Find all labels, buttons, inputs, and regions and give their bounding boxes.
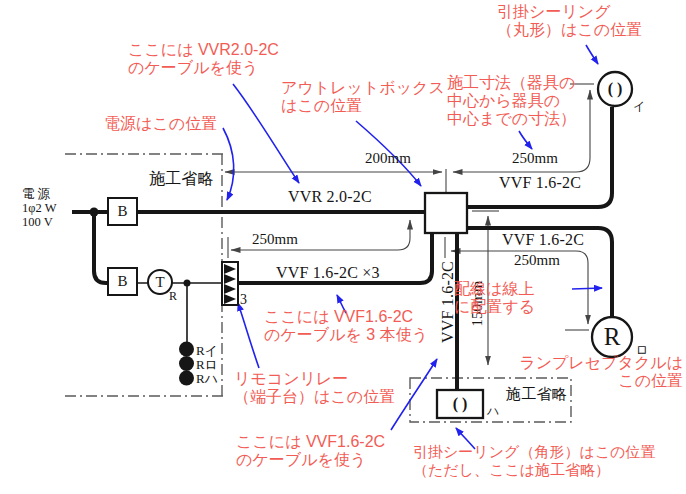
omission-left-label: 施工省略 [149,170,214,188]
arrow-wiring-on-line [572,288,602,289]
fixture-label-ha: ハ [487,403,499,420]
annotation-rose-square: 引掛シーリング（角形）はこの位置 （ただし、ここは施工省略） [413,443,655,479]
annotation-vvf-x3-cable: ここには VVF1.6-2C のケーブルを 3 本使う [264,308,428,344]
annotation-dim-note: 施工寸法（器具の 中心から器具の 中心までの寸法） [447,74,576,128]
annotation-rose-round: 引掛シーリング （丸形）はこの位置 [497,3,642,39]
annotation-relay: リモコンリレー （端子台）はこの位置 [234,370,395,406]
cable-label-vvf-mid: VVF 1.6-2C [502,231,584,249]
annotation-power-position: 電源はこの位置 [104,115,217,133]
junction-dot-power [90,208,99,217]
annotation-receptacle: ランプレセプタクルは この位置 [492,354,683,390]
dimension-250mm-left-label: 250mm [252,231,298,248]
remote-switch-dot-3 [179,371,194,386]
breaker-1-letter: B [108,198,137,225]
fixture-label-i: イ [633,98,645,115]
rose-square-glyph: ( ) [437,390,483,417]
annotation-outlet-box: アウトレットボックス はこの位置 [281,79,445,115]
outlet-box [425,193,467,233]
wiring-diagram: 電 源 1φ2 W 100 V 施工省略 施工省略 VVR 2.0-2C VVF… [0,0,686,494]
junction-dot-control [184,280,191,287]
remote-switch-label-3: Rハ [196,370,218,388]
arrow-dim-note [519,131,532,149]
cable-label-vvf-top: VVF 1.6-2C [499,174,581,192]
dimension-250mm-top-label: 250mm [512,150,558,167]
dimension-250mm-right-label: 250mm [514,252,560,269]
remote-switch-dot-2 [179,356,194,371]
arrow-power-position [223,128,234,200]
annotation-vvr-cable: ここには VVR2.0-2C のケーブルを使う [128,41,279,77]
annotation-vvf-cable: ここには VVF1.6-2C のケーブルを使う [236,433,385,469]
remote-switch-dot-1 [179,342,194,357]
rose-round-glyph: ( ) [598,72,632,105]
arrow-rose-round [586,45,598,64]
arrow-relay [238,303,259,368]
breaker-2-letter: B [108,268,137,295]
arrow-vvf-cable [391,359,437,430]
relay-count-label: 3 [240,292,247,308]
cable-label-vvf-x3: VVF 1.6-2C ×3 [276,264,380,282]
annotation-wiring-on-line: 配線は線上 に配置する [454,280,535,316]
dimension-200mm-label: 200mm [365,150,411,167]
receptacle-letter: R [592,317,632,356]
transformer-sub-letter: R [169,289,177,304]
cable-label-vvr: VVR 2.0-2C [288,188,372,206]
power-source-label: 電 源 1φ2 W 100 V [22,187,57,229]
